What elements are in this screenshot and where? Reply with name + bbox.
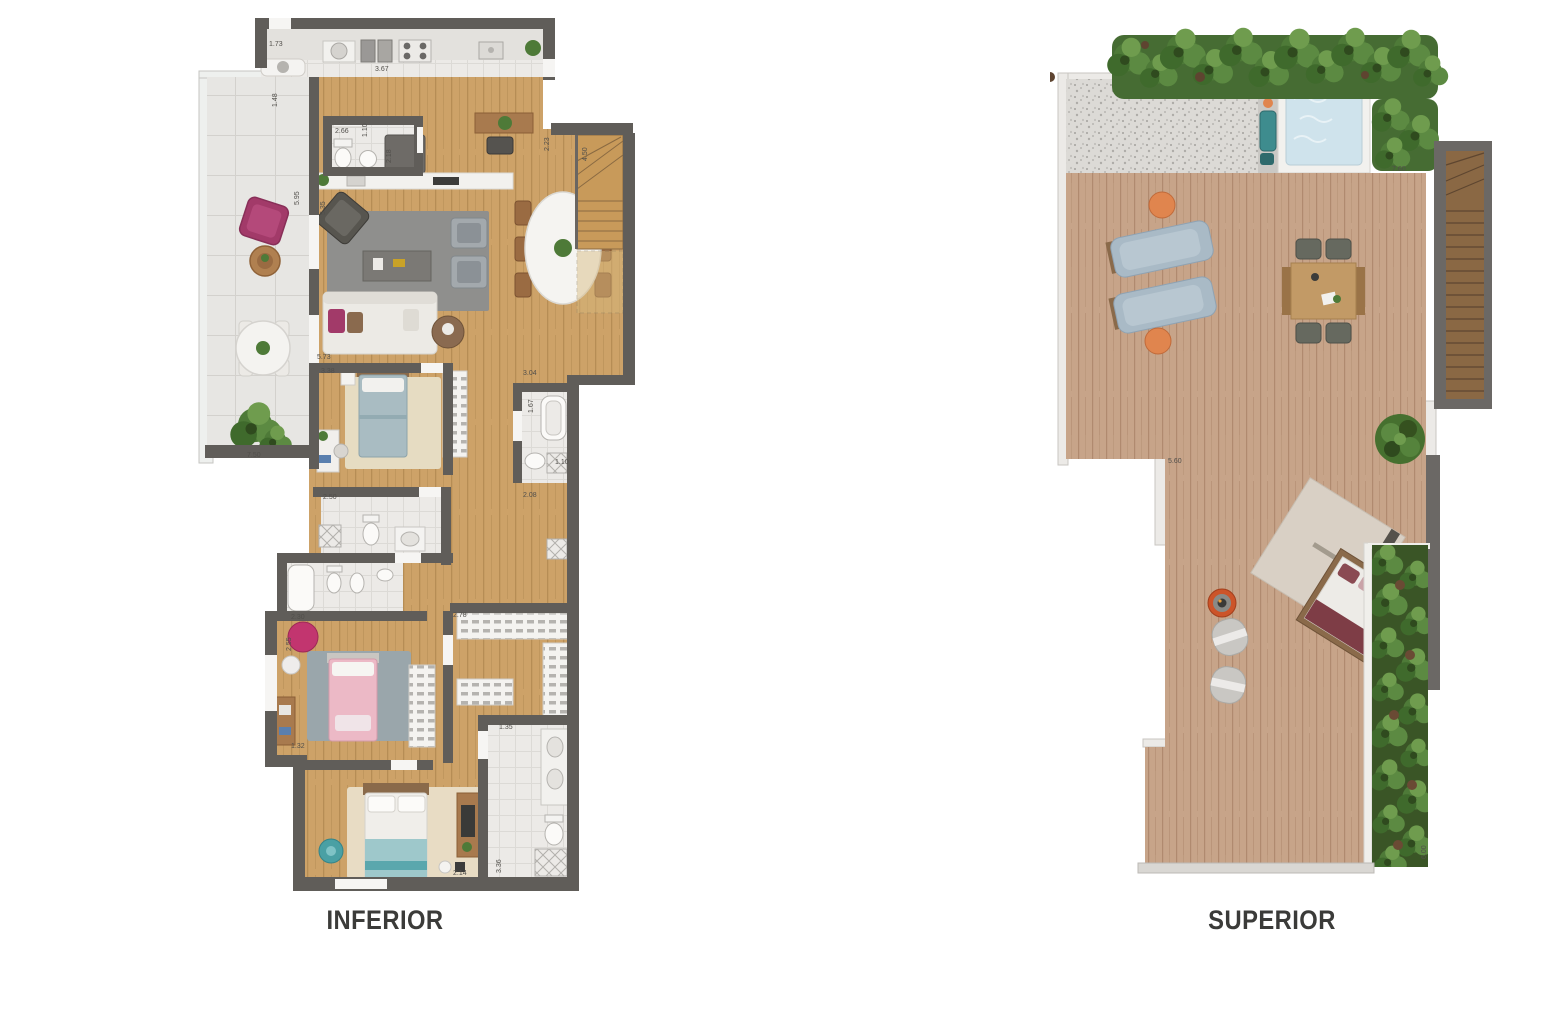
svg-text:6.00: 6.00 [1421, 845, 1428, 859]
side-table-orange [1145, 328, 1171, 354]
fire-pit [1208, 589, 1236, 617]
sofa [323, 292, 437, 354]
svg-text:5.35: 5.35 [320, 201, 327, 215]
sink [377, 569, 393, 581]
tv-dresser [457, 793, 479, 857]
kitchen-plant [525, 40, 541, 56]
wardrobe [409, 665, 435, 747]
svg-text:2.14: 2.14 [453, 870, 467, 877]
svg-text:5.95: 5.95 [294, 191, 301, 205]
svg-text:2.78: 2.78 [453, 612, 467, 619]
washing-machine [331, 43, 347, 59]
terrace-dining-table [236, 321, 290, 376]
svg-text:3.04: 3.04 [523, 370, 537, 377]
svg-text:2.18: 2.18 [386, 149, 393, 163]
svg-text:2.23: 2.23 [544, 137, 551, 151]
desk [275, 697, 295, 745]
svg-text:3.67: 3.67 [375, 66, 389, 73]
bottom-edge [1138, 863, 1374, 873]
toilet [327, 566, 342, 593]
stove [399, 40, 431, 62]
kitchen-sink [479, 42, 503, 59]
stairs [1434, 141, 1492, 409]
svg-text:7.60: 7.60 [1392, 166, 1406, 173]
superior-plan-title: SUPERIOR [1175, 905, 1369, 936]
double-sink-counter [541, 729, 568, 805]
svg-text:1.10: 1.10 [555, 459, 569, 466]
desk-chair [487, 137, 513, 154]
sink [525, 453, 545, 469]
svg-text:1.35: 1.35 [499, 724, 513, 731]
outdoor-table [1291, 263, 1356, 319]
desk-chair [334, 444, 348, 458]
svg-text:2.55: 2.55 [286, 637, 293, 651]
svg-text:1.67: 1.67 [528, 399, 535, 413]
kitchen [261, 29, 545, 77]
shower [535, 849, 567, 876]
master-bathroom [488, 725, 568, 877]
svg-text:3.38: 3.38 [321, 368, 335, 375]
svg-text:2.08: 2.08 [523, 492, 537, 499]
bathroom-2 [319, 497, 443, 553]
svg-text:1.48: 1.48 [272, 93, 279, 107]
toilet [363, 515, 379, 545]
bathroom-3 [285, 563, 403, 613]
tree [1375, 414, 1425, 464]
svg-text:2.66: 2.66 [335, 128, 349, 135]
double-bed [363, 783, 429, 879]
bathtub [288, 565, 314, 611]
kitchen-cabinet [361, 40, 375, 62]
svg-text:5.73: 5.73 [317, 354, 331, 361]
svg-text:1.73: 1.73 [269, 41, 283, 48]
toilet [334, 139, 352, 168]
single-bed [357, 367, 409, 457]
pouf [282, 656, 300, 674]
side-table-orange [1149, 192, 1175, 218]
svg-text:1.10: 1.10 [362, 123, 369, 137]
terrace-side-table [250, 246, 280, 276]
toilet [545, 815, 563, 845]
inferior-plan-title: INFERIOR [288, 905, 482, 936]
living-room [315, 190, 489, 354]
bidet [350, 573, 364, 593]
sink-counter [395, 527, 425, 551]
svg-text:2.30: 2.30 [291, 614, 305, 621]
inferior-floor-plan: 1.73 3.67 1.48 2.66 1.10 2.18 5.95 5.35 … [195, 15, 645, 895]
single-bed-pink [327, 653, 379, 741]
superior-floor-plan: 7.60 5.60 6.00 [1050, 15, 1500, 895]
garden-bed [1364, 543, 1435, 874]
round-sink [360, 151, 377, 168]
svg-text:3.36: 3.36 [496, 859, 503, 873]
svg-text:7.50: 7.50 [247, 452, 261, 459]
svg-text:2.50: 2.50 [323, 494, 337, 501]
svg-text:5.60: 5.60 [1168, 458, 1182, 465]
svg-text:1.32: 1.32 [291, 743, 305, 750]
hedge-right-of-jacuzzi [1372, 98, 1439, 171]
svg-text:4.50: 4.50 [582, 147, 589, 161]
wall [1426, 455, 1440, 690]
